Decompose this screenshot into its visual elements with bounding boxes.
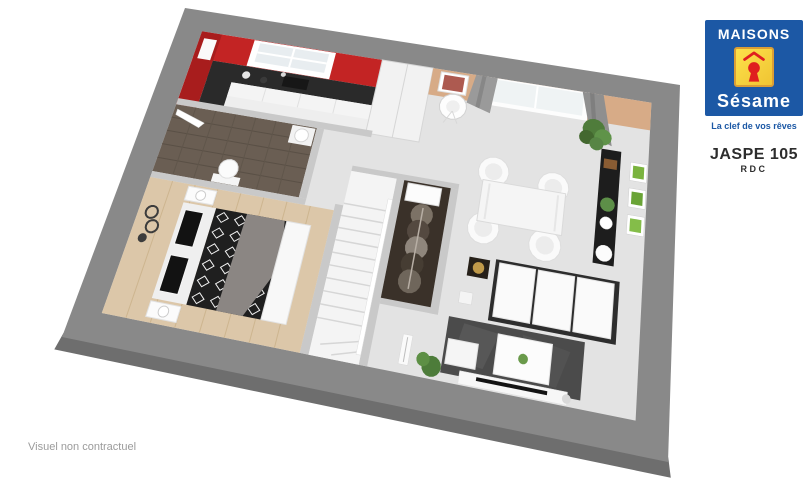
floor-magazine [458,291,473,305]
nightstand-left-lamp [196,191,206,201]
maisons-sesame-logo: MAISONS Sésame [705,20,803,116]
brand-block: MAISONS Sésame La clef de vos rêves JASP… [700,20,808,174]
wall-frame-1-art [633,166,645,180]
logo-tagline: La clef de vos rêves [700,121,808,131]
floorplan-3d-render [0,0,811,480]
sofa-cushion-2 [533,270,575,331]
disclaimer-text: Visuel non contractuel [28,441,136,453]
wall-frame-3-art [629,218,641,233]
sofa-cushion-3 [573,277,614,339]
keyhole-house-icon [734,47,774,87]
page-root: MAISONS Sésame La clef de vos rêves JASP… [0,0,811,480]
logo-wordmark-script: Sésame [717,92,791,110]
wall-frame-2-art [631,192,643,207]
plan-model-title: JASPE 105 [700,146,808,164]
plan-level-label: RDC [700,164,808,174]
sofa-side-lamp [473,262,484,274]
bathroom-sink [295,129,309,142]
nightstand-right-lamp [158,306,169,317]
logo-wordmark-top: MAISONS [718,27,790,41]
sofa-cushion-1 [493,263,536,324]
living-pouf [445,339,479,370]
